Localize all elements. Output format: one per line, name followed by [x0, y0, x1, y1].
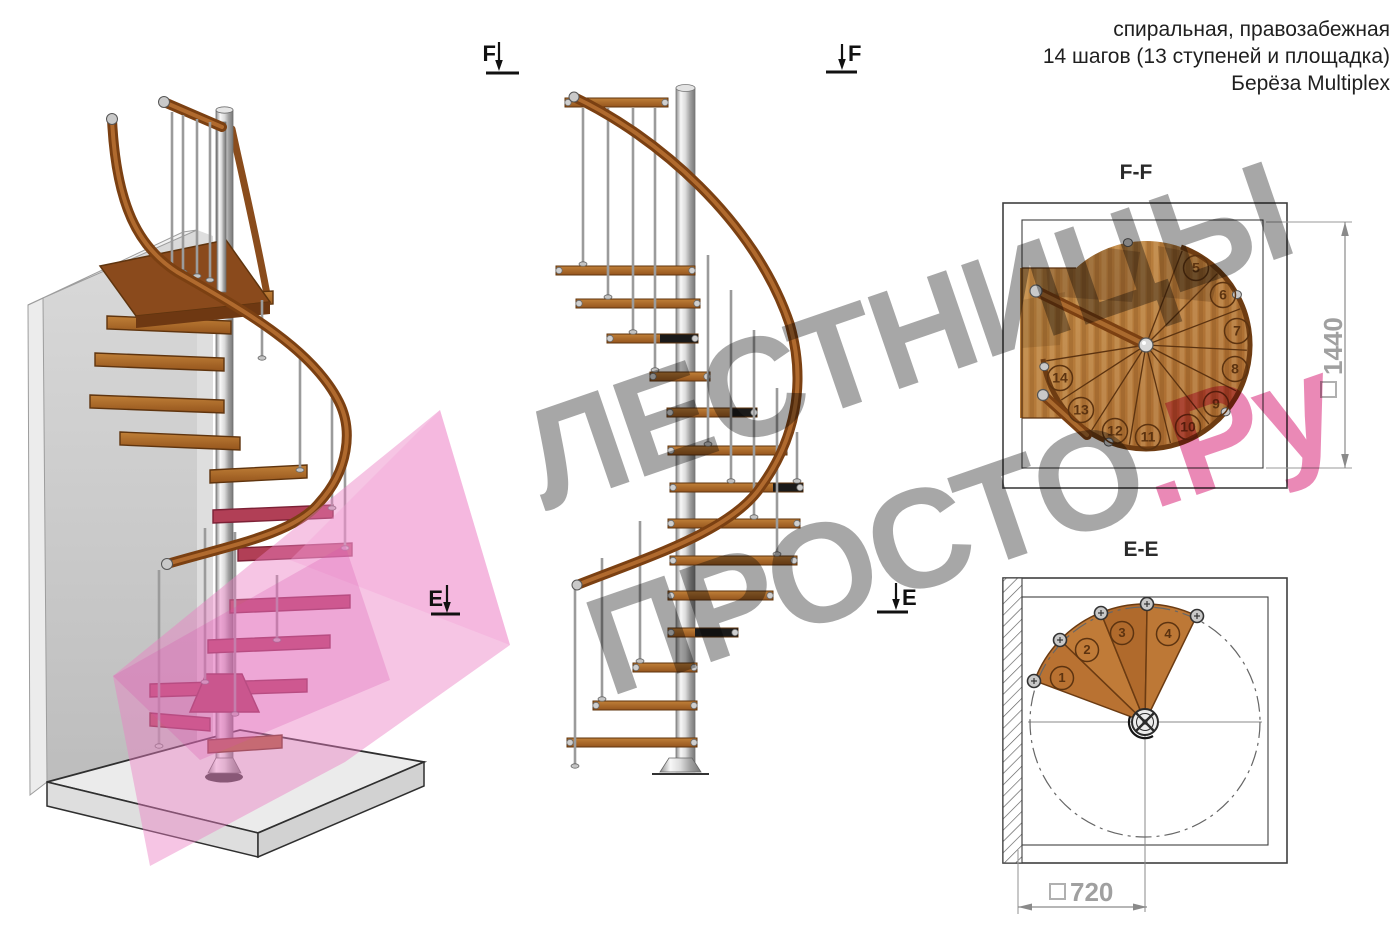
baluster-foot [206, 278, 214, 282]
step-elevation [650, 372, 710, 381]
pole-cap-elevation [676, 85, 695, 92]
step-number: 12 [1107, 423, 1123, 439]
drawing-page: { "header": { "line1": "спиральная, прав… [0, 0, 1400, 940]
step-number: 8 [1231, 361, 1239, 377]
baluster-foot [773, 552, 781, 556]
step-elevation [567, 738, 697, 747]
spec-type: спиральная, правозабежная [1113, 18, 1390, 41]
step-number: 2 [1083, 642, 1090, 657]
step-fitting [668, 629, 674, 635]
baluster-foot [651, 368, 659, 372]
marker-letter: E [902, 585, 917, 610]
step-fitting [794, 520, 800, 526]
step-number: 1 [1058, 670, 1065, 685]
step-number: 9 [1212, 396, 1220, 412]
step-fitting [694, 300, 700, 306]
ff-center-ball [1139, 338, 1153, 352]
newel-post-3d [217, 122, 226, 292]
marker-letter: F [848, 41, 861, 66]
step-fitting [556, 267, 562, 273]
step-fitting [668, 520, 674, 526]
rail-cap [162, 559, 173, 570]
technical-drawing-canvas: F-F 567891011121314 [0, 0, 1400, 940]
step-fitting [691, 702, 697, 708]
step-fitting [797, 484, 803, 490]
baluster-foot [296, 468, 304, 472]
step-fitting [691, 664, 697, 670]
step-elevation [633, 663, 697, 672]
step-fitting [791, 557, 797, 563]
rail-cap [572, 580, 582, 590]
ff-rim-baluster [1040, 363, 1049, 371]
step-number: 13 [1073, 402, 1089, 418]
step-fitting [689, 267, 695, 273]
step-number: 6 [1219, 287, 1227, 303]
baluster-foot [571, 764, 579, 768]
step-number: 3 [1118, 625, 1125, 640]
step-elevation [668, 446, 787, 455]
spec-material: Берёза Multiplex [1231, 72, 1390, 95]
step-fitting [667, 409, 673, 415]
step-number: 7 [1233, 323, 1241, 339]
ee-wall-hatch [1003, 578, 1022, 863]
ee-dimension-value: 720 [1070, 877, 1113, 907]
step-fitting [668, 592, 674, 598]
baluster-foot [629, 330, 637, 334]
step-fitting [692, 335, 698, 341]
step-fitting [567, 739, 573, 745]
spec-steps: 14 шагов (13 ступеней и площадка) [1043, 45, 1390, 68]
step-number: 5 [1192, 260, 1200, 276]
step-fitting [732, 629, 738, 635]
rail-cap [107, 114, 118, 125]
step-elevation [593, 701, 697, 710]
ff-dimension-value: 1440 [1318, 317, 1348, 375]
pole-cap-3d [216, 107, 233, 113]
baluster-foot [604, 295, 612, 299]
step-fitting [668, 447, 674, 453]
baluster-foot [636, 659, 644, 663]
marker-letter: E [428, 586, 443, 611]
rail-cap [159, 97, 170, 108]
baluster-foot [793, 479, 801, 483]
step-number: 10 [1180, 419, 1196, 435]
step-fitting [691, 739, 697, 745]
ff-rim-baluster [1123, 239, 1132, 247]
step-number: 4 [1164, 626, 1172, 641]
step-fitting [767, 592, 773, 598]
ff-rim-baluster [1232, 291, 1241, 299]
baluster-foot [258, 356, 266, 360]
step-elevation [668, 519, 800, 528]
baluster-foot [727, 479, 735, 483]
step-number: 14 [1052, 370, 1068, 386]
step-elevation [670, 556, 797, 565]
baluster-foot [704, 442, 712, 446]
step-fitting [670, 484, 676, 490]
baluster-foot [579, 262, 587, 266]
rail-cap [1038, 390, 1049, 401]
step-fitting [593, 702, 599, 708]
marker-letter: F [483, 41, 496, 66]
ff-title: F-F [1120, 161, 1153, 184]
ff-center-ball-highlight [1142, 341, 1146, 345]
step-elevation [556, 266, 695, 275]
rail-cap [1030, 285, 1042, 297]
baluster-foot [750, 515, 758, 519]
step-fitting [576, 300, 582, 306]
step-fitting [650, 373, 656, 379]
rail-cap [569, 92, 579, 102]
step-fitting [607, 335, 613, 341]
step-fitting [662, 99, 668, 105]
step-number: 11 [1141, 429, 1156, 445]
step-elevation [576, 299, 700, 308]
step-elevation [668, 591, 773, 600]
step-fitting [670, 557, 676, 563]
step-fitting [633, 664, 639, 670]
baluster-foot [598, 697, 606, 701]
ee-title: E-E [1123, 538, 1158, 561]
